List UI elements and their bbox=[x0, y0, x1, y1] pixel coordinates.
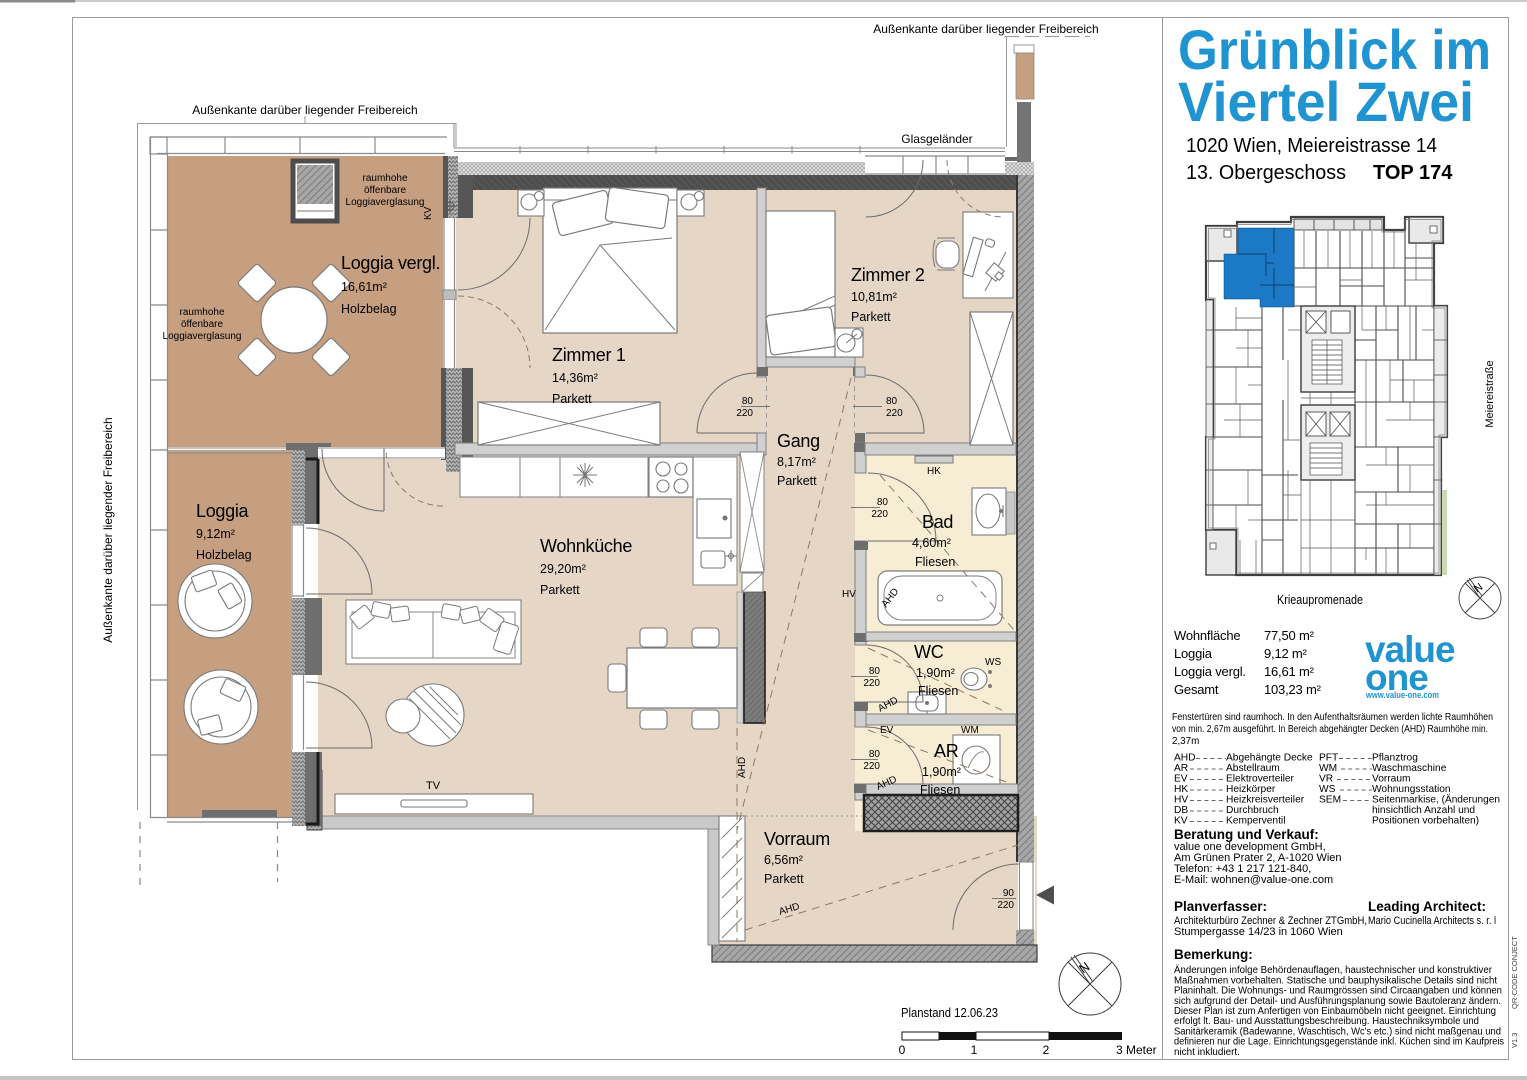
svg-text:Parkett: Parkett bbox=[552, 392, 592, 406]
svg-text:13. Obergeschoss: 13. Obergeschoss bbox=[1186, 162, 1346, 184]
svg-text:www.value-one.com: www.value-one.com bbox=[1365, 690, 1439, 700]
svg-text:EV: EV bbox=[880, 725, 894, 736]
svg-text:0: 0 bbox=[899, 1043, 906, 1057]
svg-text:Fliesen: Fliesen bbox=[915, 555, 955, 569]
svg-text:Fenstertüren sind raumhoch. In: Fenstertüren sind raumhoch. In den Aufen… bbox=[1172, 712, 1493, 723]
svg-text:1: 1 bbox=[971, 1043, 978, 1057]
svg-text:WS: WS bbox=[985, 657, 1001, 668]
svg-text:HV: HV bbox=[842, 589, 856, 600]
svg-text:29,20m²: 29,20m² bbox=[540, 562, 586, 576]
svg-text:Elektroverteiler: Elektroverteiler bbox=[1226, 774, 1295, 785]
svg-text:Bemerkung:: Bemerkung: bbox=[1174, 947, 1253, 962]
svg-text:HK: HK bbox=[1174, 784, 1188, 795]
svg-text:80: 80 bbox=[886, 396, 898, 407]
svg-text:WS: WS bbox=[1319, 784, 1336, 795]
svg-text:220: 220 bbox=[886, 408, 903, 419]
svg-text:raumhohe: raumhohe bbox=[362, 173, 407, 184]
svg-text:QR-CODE CONJECT: QR-CODE CONJECT bbox=[1510, 936, 1519, 1009]
svg-text:77,50 m²: 77,50 m² bbox=[1264, 628, 1315, 643]
svg-text:Heizkörper: Heizkörper bbox=[1226, 784, 1276, 795]
svg-text:16,61 m²: 16,61 m² bbox=[1264, 664, 1315, 679]
svg-text:VR: VR bbox=[1319, 774, 1333, 785]
svg-text:Positionen vorbehalten): Positionen vorbehalten) bbox=[1372, 816, 1479, 827]
svg-text:9,12m²: 9,12m² bbox=[196, 527, 235, 541]
svg-text:AR: AR bbox=[1174, 763, 1188, 774]
svg-text:Außenkante darüber liegender F: Außenkante darüber liegender Freibereich bbox=[101, 417, 115, 642]
svg-text:von min. 2,67m ausgeführt. In: von min. 2,67m ausgeführt. In Bereich ab… bbox=[1172, 724, 1488, 735]
svg-text:Planstand 12.06.23: Planstand 12.06.23 bbox=[901, 1006, 998, 1020]
svg-text:Holzbelag: Holzbelag bbox=[341, 302, 397, 316]
svg-text:220: 220 bbox=[736, 408, 753, 419]
svg-text:Gang: Gang bbox=[777, 431, 820, 451]
svg-text:Stumpergasse 14/23 in 1060 Wie: Stumpergasse 14/23 in 1060 Wien bbox=[1174, 926, 1343, 938]
svg-text:Leading Architect:: Leading Architect: bbox=[1368, 899, 1486, 914]
svg-text:16,61m²: 16,61m² bbox=[341, 280, 387, 294]
svg-text:hinsichtlich Anzahl und: hinsichtlich Anzahl und bbox=[1372, 805, 1475, 816]
svg-text:14,36m²: 14,36m² bbox=[552, 371, 598, 385]
svg-text:HV: HV bbox=[1174, 795, 1188, 806]
svg-text:WC: WC bbox=[914, 642, 944, 662]
svg-text:HK: HK bbox=[927, 466, 941, 477]
svg-text:KV: KV bbox=[1174, 816, 1188, 827]
svg-text:Fliesen: Fliesen bbox=[920, 783, 960, 797]
svg-text:Wohnfläche: Wohnfläche bbox=[1174, 628, 1240, 643]
svg-text:EV: EV bbox=[1174, 774, 1188, 785]
svg-text:220: 220 bbox=[871, 509, 888, 520]
svg-text:Außenkante darüber liegender F: Außenkante darüber liegender Freibereich bbox=[873, 22, 1098, 36]
svg-text:Durchbruch: Durchbruch bbox=[1226, 805, 1279, 816]
svg-text:220: 220 bbox=[863, 678, 880, 689]
svg-text:10,81m²: 10,81m² bbox=[851, 290, 897, 304]
svg-text:Seitenmarkise, (Änderungen: Seitenmarkise, (Änderungen bbox=[1372, 794, 1500, 806]
svg-text:Viertel Zwei: Viertel Zwei bbox=[1178, 70, 1474, 133]
svg-text:E-Mail: wohnen@value-one.com: E-Mail: wohnen@value-one.com bbox=[1174, 874, 1333, 886]
svg-text:Zimmer 2: Zimmer 2 bbox=[851, 265, 925, 285]
svg-text:Außenkante darüber liegender F: Außenkante darüber liegender Freibereich bbox=[192, 103, 417, 117]
svg-text:80: 80 bbox=[742, 396, 754, 407]
svg-text:Parkett: Parkett bbox=[540, 583, 580, 597]
svg-text:Beratung und Verkauf:: Beratung und Verkauf: bbox=[1174, 827, 1319, 842]
svg-text:Planverfasser:: Planverfasser: bbox=[1174, 899, 1267, 914]
svg-text:Zimmer 1: Zimmer 1 bbox=[552, 345, 626, 365]
svg-text:Holzbelag: Holzbelag bbox=[196, 548, 252, 562]
svg-text:Pflanztrog: Pflanztrog bbox=[1372, 753, 1418, 764]
svg-text:definieren nur die Lage. Einri: definieren nur die Lage. Einrichtungsgeg… bbox=[1174, 1037, 1504, 1048]
svg-text:220: 220 bbox=[997, 900, 1014, 911]
svg-text:TV: TV bbox=[426, 780, 441, 792]
svg-text:öffenbare: öffenbare bbox=[181, 319, 224, 330]
svg-text:Kemperventil: Kemperventil bbox=[1226, 816, 1285, 827]
svg-text:DB: DB bbox=[1174, 805, 1188, 816]
svg-text:2,37m: 2,37m bbox=[1172, 736, 1199, 747]
svg-text:Waschmaschine: Waschmaschine bbox=[1372, 763, 1447, 774]
svg-text:1,90m²: 1,90m² bbox=[922, 765, 961, 779]
svg-text:Loggiaverglasung: Loggiaverglasung bbox=[163, 331, 242, 342]
svg-text:Parkett: Parkett bbox=[777, 474, 817, 488]
svg-text:erfolgt lt. Bau- und Ausstattu: erfolgt lt. Bau- und Ausstattungsbeschre… bbox=[1174, 1016, 1479, 1027]
svg-text:Krieaupromenade: Krieaupromenade bbox=[1277, 593, 1363, 607]
svg-text:Abstellraum: Abstellraum bbox=[1226, 763, 1280, 774]
svg-text:4,60m²: 4,60m² bbox=[912, 536, 951, 550]
svg-text:AHD: AHD bbox=[737, 757, 748, 778]
svg-text:Meiereistraße: Meiereistraße bbox=[1484, 360, 1496, 427]
svg-text:Loggia: Loggia bbox=[196, 501, 250, 521]
svg-text:WM: WM bbox=[961, 725, 979, 736]
svg-text:Mario Cucinella Architects s.: Mario Cucinella Architects s. r. l bbox=[1368, 915, 1496, 927]
svg-text:90: 90 bbox=[1003, 888, 1015, 899]
svg-text:Bad: Bad bbox=[922, 512, 953, 532]
svg-text:Parkett: Parkett bbox=[764, 872, 804, 886]
svg-text:Änderungen infolge Behördenauf: Änderungen infolge Behördenauflagen, hau… bbox=[1174, 965, 1493, 976]
svg-text:9,12 m²: 9,12 m² bbox=[1264, 646, 1308, 661]
svg-text:1020 Wien, Meiereistrasse 14: 1020 Wien, Meiereistrasse 14 bbox=[1186, 135, 1437, 157]
svg-text:6,56m²: 6,56m² bbox=[764, 853, 803, 867]
svg-text:Vorraum: Vorraum bbox=[1372, 774, 1411, 785]
svg-text:V1.3: V1.3 bbox=[1510, 1033, 1519, 1048]
svg-text:WM: WM bbox=[1319, 763, 1337, 774]
svg-text:220: 220 bbox=[863, 761, 880, 772]
svg-text:2: 2 bbox=[1043, 1043, 1050, 1057]
svg-text:öffenbare: öffenbare bbox=[364, 185, 407, 196]
svg-text:3 Meter: 3 Meter bbox=[1116, 1043, 1157, 1057]
svg-text:raumhohe: raumhohe bbox=[179, 307, 224, 318]
svg-text:SEM: SEM bbox=[1319, 795, 1341, 806]
svg-text:Fliesen: Fliesen bbox=[918, 684, 958, 698]
svg-text:Loggiaverglasung: Loggiaverglasung bbox=[346, 197, 425, 208]
svg-text:Glasgeländer: Glasgeländer bbox=[901, 132, 972, 146]
svg-text:Wohnküche: Wohnküche bbox=[540, 536, 632, 556]
svg-text:Loggia vergl.: Loggia vergl. bbox=[341, 253, 440, 273]
svg-text:1,90m²: 1,90m² bbox=[916, 666, 955, 680]
svg-text:TOP 174: TOP 174 bbox=[1373, 162, 1453, 184]
svg-text:80: 80 bbox=[869, 749, 881, 760]
svg-text:Loggia vergl.: Loggia vergl. bbox=[1174, 664, 1246, 679]
svg-text:Parkett: Parkett bbox=[851, 310, 891, 324]
svg-text:Gesamt: Gesamt bbox=[1174, 682, 1219, 697]
svg-text:Abgehängte Decke: Abgehängte Decke bbox=[1226, 753, 1313, 764]
svg-text:Planinhalt. Die Wohnungs- und: Planinhalt. Die Wohnungs- und Raumgrösse… bbox=[1174, 986, 1502, 997]
svg-text:Heizkreisverteiler: Heizkreisverteiler bbox=[1226, 795, 1305, 806]
svg-text:nicht inkludiert.: nicht inkludiert. bbox=[1174, 1047, 1240, 1058]
svg-text:AHD: AHD bbox=[1174, 753, 1196, 764]
svg-text:80: 80 bbox=[877, 497, 889, 508]
svg-text:Wohnungsstation: Wohnungsstation bbox=[1372, 784, 1451, 795]
svg-text:PFT: PFT bbox=[1319, 753, 1338, 764]
svg-text:80: 80 bbox=[869, 666, 881, 677]
svg-text:103,23 m²: 103,23 m² bbox=[1264, 682, 1322, 697]
svg-text:KV: KV bbox=[423, 206, 434, 220]
svg-text:AR: AR bbox=[934, 741, 959, 761]
svg-text:8,17m²: 8,17m² bbox=[777, 455, 816, 469]
svg-text:Loggia: Loggia bbox=[1174, 646, 1213, 661]
svg-text:Vorraum: Vorraum bbox=[764, 829, 830, 849]
